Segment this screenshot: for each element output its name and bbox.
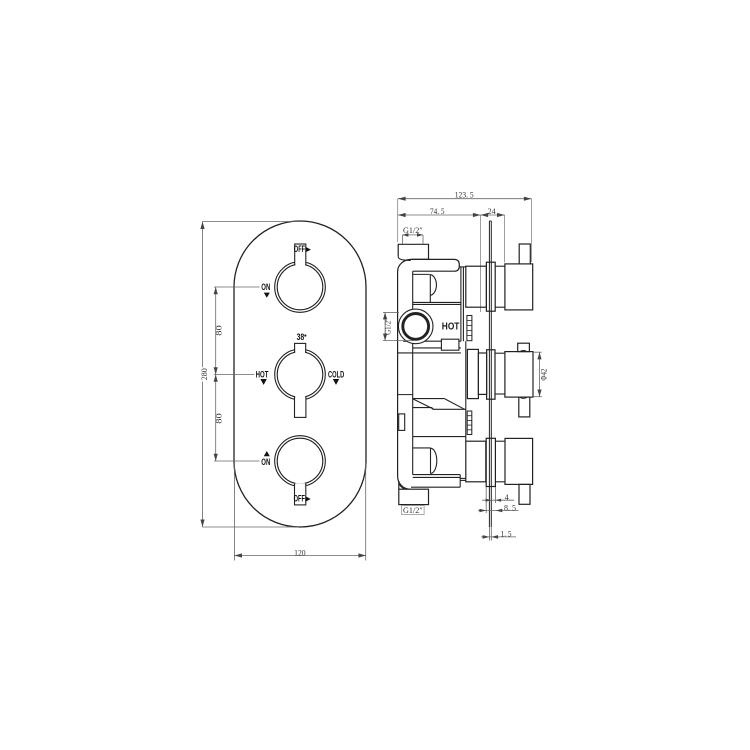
svg-text:74. 5: 74. 5 bbox=[430, 207, 445, 216]
svg-text:G1/2″: G1/2″ bbox=[403, 506, 423, 515]
svg-text:8. 5: 8. 5 bbox=[504, 503, 516, 512]
svg-text:120: 120 bbox=[294, 548, 306, 557]
svg-text:123. 5: 123. 5 bbox=[455, 191, 474, 200]
svg-text:80: 80 bbox=[214, 413, 223, 424]
svg-text:HOT: HOT bbox=[256, 370, 269, 380]
svg-text:38: 38 bbox=[297, 332, 305, 342]
svg-text:ON: ON bbox=[261, 457, 270, 467]
svg-text:4: 4 bbox=[505, 493, 509, 502]
svg-text:ON: ON bbox=[261, 282, 270, 292]
svg-text:G1/2″: G1/2″ bbox=[384, 318, 393, 335]
svg-text:Φ42: Φ42 bbox=[540, 369, 549, 381]
svg-text:OFF: OFF bbox=[294, 244, 306, 254]
svg-text:280: 280 bbox=[200, 368, 209, 380]
svg-text:1. 5: 1. 5 bbox=[501, 529, 512, 538]
svg-text:COLD: COLD bbox=[328, 370, 345, 380]
svg-text:G1/2″: G1/2″ bbox=[403, 226, 423, 235]
svg-text:HOT: HOT bbox=[442, 322, 460, 333]
svg-text:OFF: OFF bbox=[294, 494, 306, 504]
svg-text:80: 80 bbox=[214, 325, 223, 336]
svg-text:24: 24 bbox=[488, 207, 496, 216]
